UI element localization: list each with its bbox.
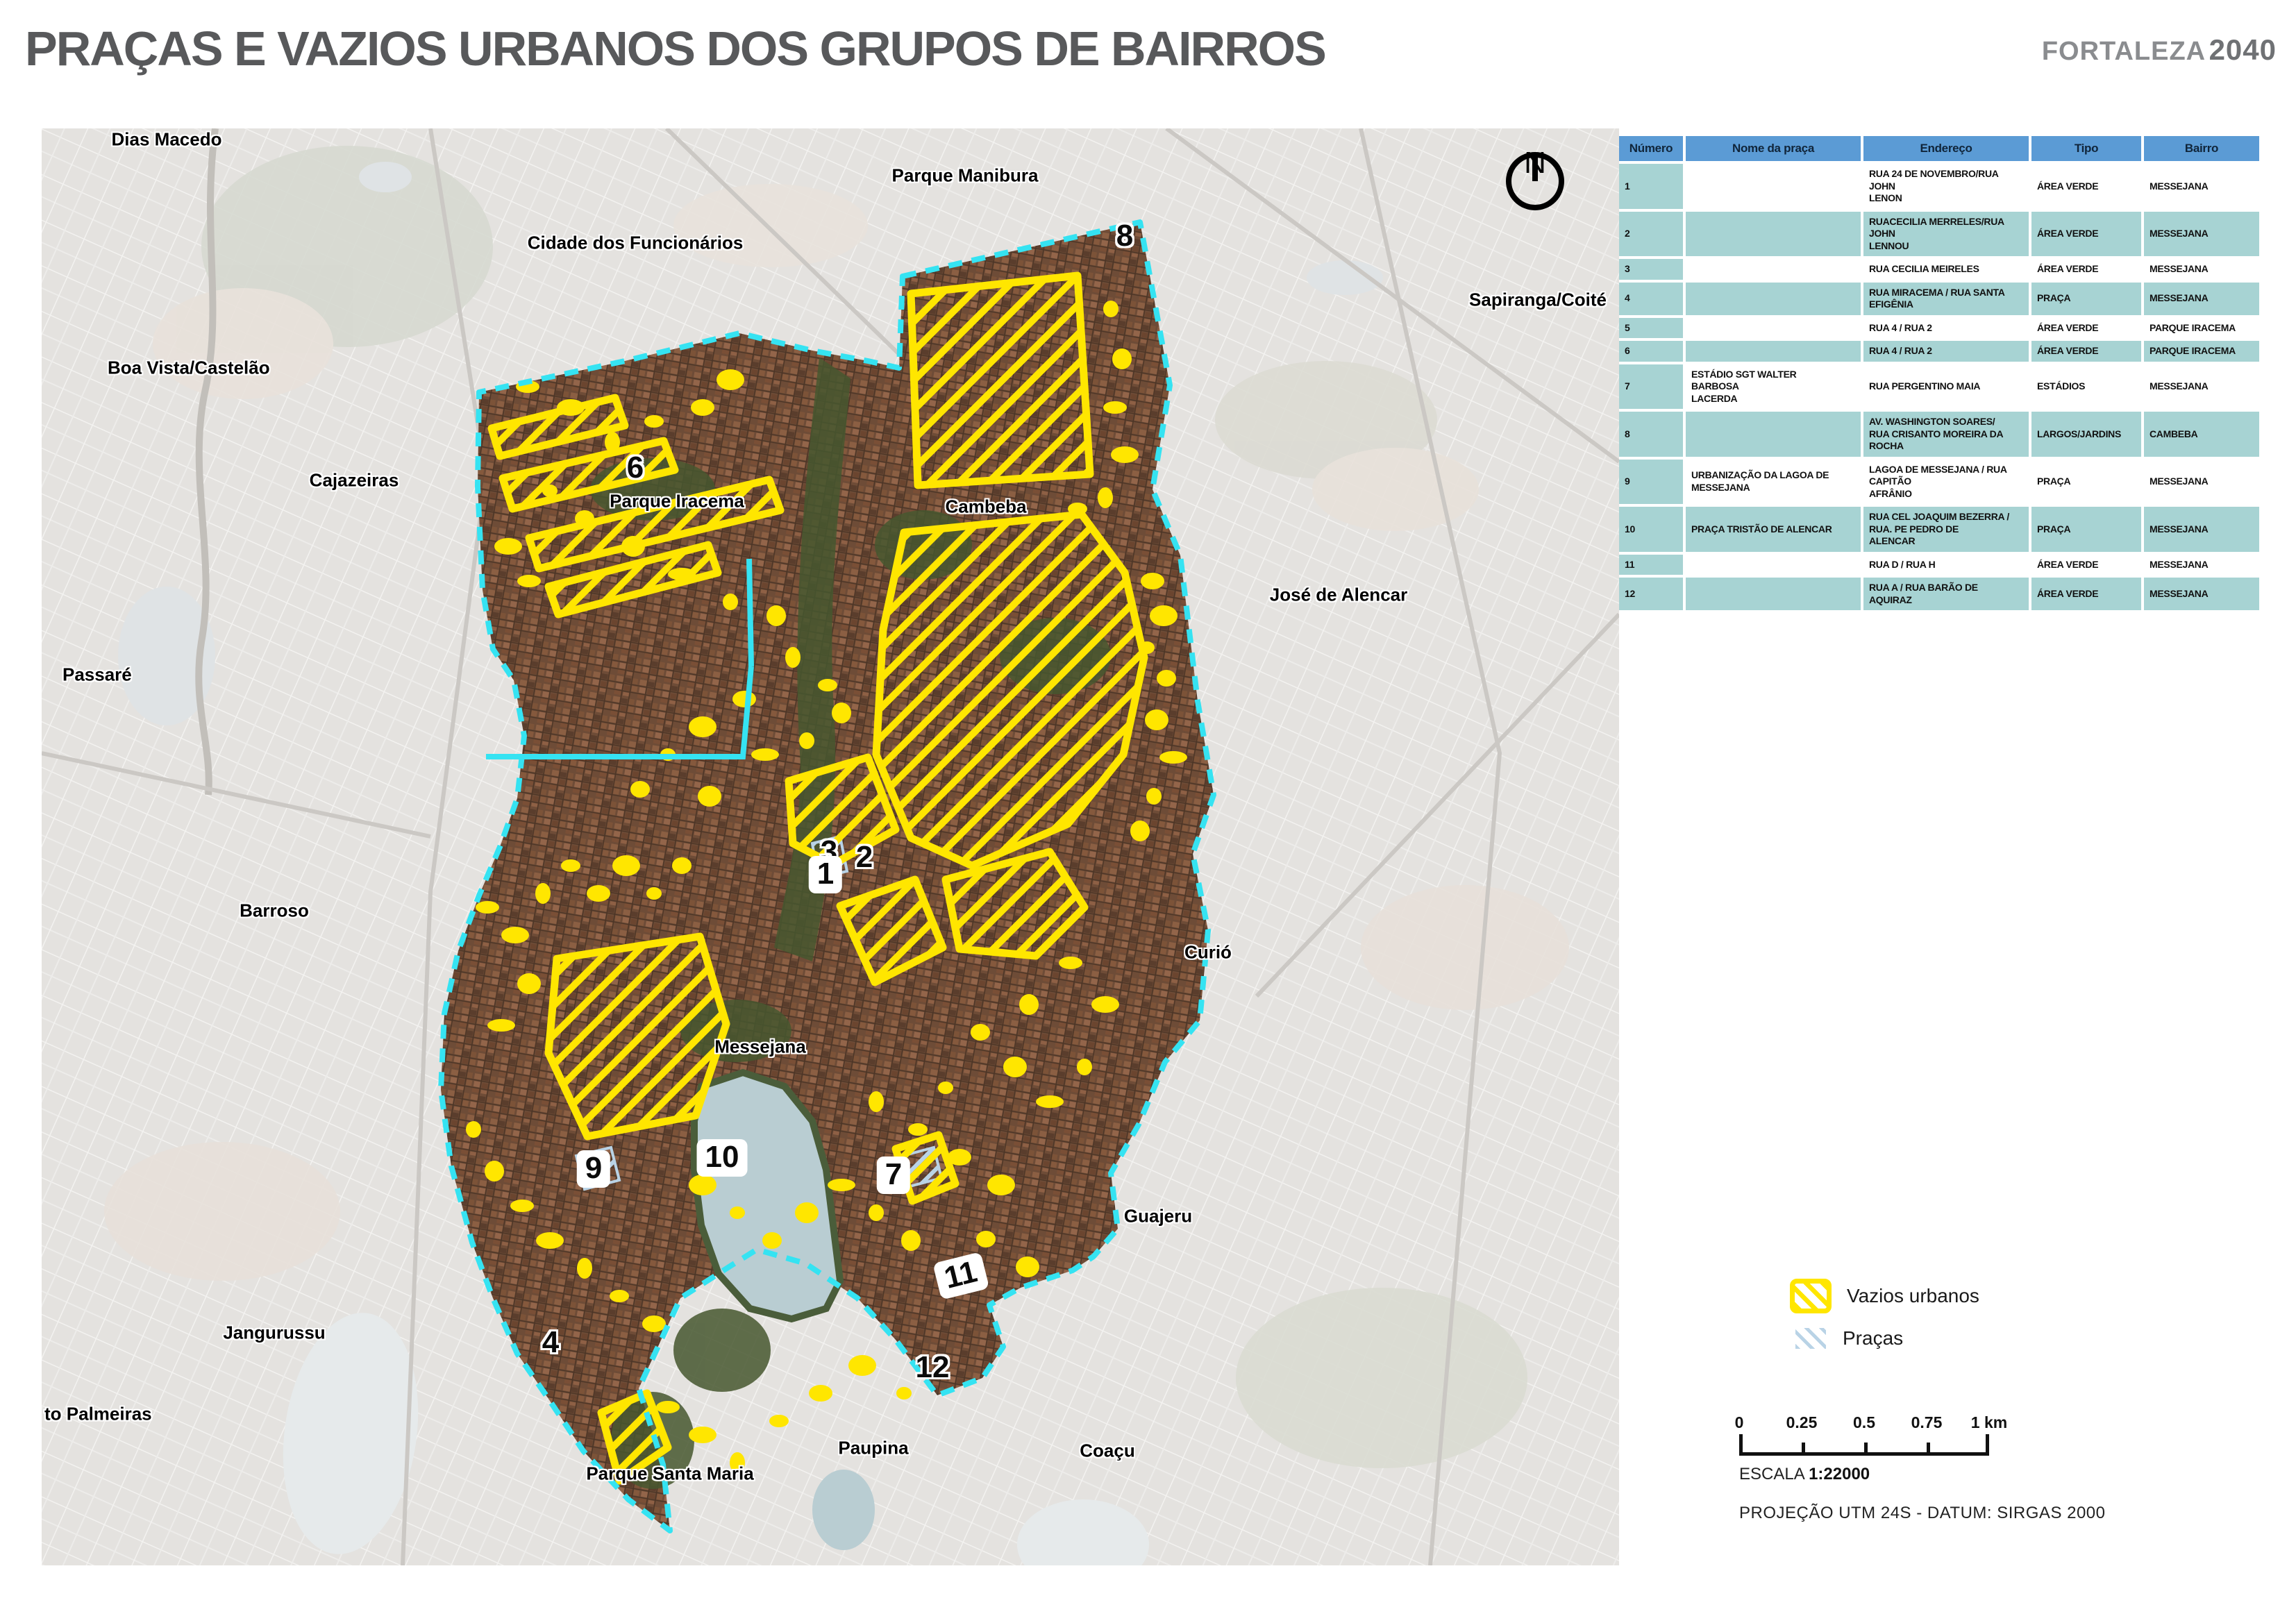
scale-tick [1739,1434,1743,1452]
cell-bairro: MESSEJANA [2144,283,2259,315]
map-region-label: José de Alencar [1270,585,1407,606]
cell-num: 4 [1619,283,1683,315]
cell-tipo: ESTÁDIOS [2031,364,2141,410]
cell-endereco: RUA 4 / RUA 2 [1863,341,2029,362]
cell-num: 6 [1619,341,1683,362]
scale-tick-label: 1 km [1971,1413,2007,1432]
cell-tipo: ÁREA VERDE [2031,164,2141,209]
cell-tipo: ÁREA VERDE [2031,318,2141,339]
scale-tick-label: 0 [1735,1413,1744,1432]
table-row: 1RUA 24 DE NOVEMBRO/RUA JOHN LENONÁREA V… [1619,164,2259,209]
map-marker-7: 7 [877,1157,910,1194]
scale-tick [1986,1434,1989,1452]
page: PRAÇAS E VAZIOS URBANOS DOS GRUPOS DE BA… [0,0,2296,1623]
map-marker-4: 4 [542,1327,559,1358]
map-marker-9: 9 [577,1150,610,1188]
cell-tipo: PRAÇA [2031,507,2141,552]
compass-icon [1503,148,1567,212]
escala-value: 1:22000 [1809,1465,1870,1483]
map-region-label: Paupina [838,1438,908,1459]
map-region-label: Boa Vista/Castelão [108,358,270,379]
cell-endereco: RUA MIRACEMA / RUA SANTA EFIGÊNIA [1863,283,2029,315]
projection-text: PROJEÇÃO UTM 24S - DATUM: SIRGAS 2000 [1739,1504,2106,1523]
cell-num: 12 [1619,578,1683,610]
cell-num: 9 [1619,460,1683,505]
cell-num: 10 [1619,507,1683,552]
map-marker-1: 1 [809,856,842,893]
cell-nome [1686,283,1861,315]
page-title: PRAÇAS E VAZIOS URBANOS DOS GRUPOS DE BA… [25,21,1325,76]
table-row: 8AV. WASHINGTON SOARES/ RUA CRISANTO MOR… [1619,412,2259,457]
cell-bairro: MESSEJANA [2144,212,2259,257]
cell-num: 5 [1619,318,1683,339]
scale-tick-label: 0.25 [1786,1413,1818,1432]
cell-nome: URBANIZAÇÃO DA LAGOA DE MESSEJANA [1686,460,1861,505]
north-arrow: N [1503,148,1567,181]
column-header: Tipo [2031,136,2141,161]
cell-bairro: PARQUE IRACEMA [2144,341,2259,362]
map-region-label: Cambeba [945,496,1026,518]
table-row: 9URBANIZAÇÃO DA LAGOA DE MESSEJANALAGOA … [1619,460,2259,505]
cell-tipo: PRAÇA [2031,283,2141,315]
cell-tipo: PRAÇA [2031,460,2141,505]
table-row: 2RUACECILIA MERRELES/RUA JOHN LENNOUÁREA… [1619,212,2259,257]
map-marker-10: 10 [697,1139,748,1177]
column-header: Bairro [2144,136,2259,161]
cell-nome [1686,412,1861,457]
logo-year: 2040 [2209,33,2277,66]
scale-tick-label: 0.75 [1911,1413,1943,1432]
legend-item-vazios: Vazios urbanos [1790,1279,1979,1313]
cell-nome: ESTÁDIO SGT WALTER BARBOSA LACERDA [1686,364,1861,410]
map-region-label: Dias Macedo [112,129,222,151]
map-region-label: Cidade dos Funcionários [528,233,744,254]
cell-endereco: RUA 24 DE NOVEMBRO/RUA JOHN LENON [1863,164,2029,209]
table-row: 5RUA 4 / RUA 2ÁREA VERDEPARQUE IRACEMA [1619,318,2259,339]
cell-bairro: MESSEJANA [2144,164,2259,209]
table-body: 1RUA 24 DE NOVEMBRO/RUA JOHN LENONÁREA V… [1619,164,2259,610]
cell-endereco: RUA A / RUA BARÃO DE AQUIRAZ [1863,578,2029,610]
map-region-label: Parque Manibura [892,165,1039,187]
cell-num: 11 [1619,555,1683,575]
map-region-label: Messejana [714,1036,806,1058]
map-region-label: Parque Santa Maria [586,1463,753,1485]
column-header: Nome da praça [1686,136,1861,161]
table-row: 6RUA 4 / RUA 2ÁREA VERDEPARQUE IRACEMA [1619,341,2259,362]
cell-endereco: LAGOA DE MESSEJANA / RUA CAPITÃO AFRÂNIO [1863,460,2029,505]
cell-tipo: ÁREA VERDE [2031,578,2141,610]
column-header: Endereço [1863,136,2029,161]
cell-bairro: MESSEJANA [2144,555,2259,575]
scale-text: ESCALA 1:22000 [1739,1465,1870,1484]
map-region-label: Barroso [240,900,309,922]
map-marker-8: 8 [1116,221,1133,251]
cell-endereco: RUA CECILIA MEIRELES [1863,259,2029,280]
cell-nome [1686,164,1861,209]
cell-tipo: LARGOS/JARDINS [2031,412,2141,457]
map-region-label: to Palmeiras [44,1404,152,1425]
cell-nome [1686,212,1861,257]
pracas-table: NúmeroNome da praçaEndereçoTipoBairro 1R… [1616,133,2262,613]
map-region-label: Passaré [62,664,132,686]
logo-name: FORTALEZA [2042,37,2206,66]
cell-endereco: RUA D / RUA H [1863,555,2029,575]
cell-bairro: CAMBEBA [2144,412,2259,457]
scalebar: 00.250.50.751 km [1739,1413,1989,1456]
cell-tipo: ÁREA VERDE [2031,259,2141,280]
cell-num: 1 [1619,164,1683,209]
map-marker-2: 2 [856,842,873,873]
scale-tick [1927,1443,1930,1452]
cell-num: 3 [1619,259,1683,280]
map-marker-11: 11 [932,1252,989,1300]
cell-endereco: RUA PERGENTINO MAIA [1863,364,2029,410]
cell-bairro: MESSEJANA [2144,507,2259,552]
cell-num: 8 [1619,412,1683,457]
cell-num: 2 [1619,212,1683,257]
column-header: Número [1619,136,1683,161]
cell-bairro: MESSEJANA [2144,578,2259,610]
cell-bairro: MESSEJANA [2144,364,2259,410]
cell-nome: PRAÇA TRISTÃO DE ALENCAR [1686,507,1861,552]
cell-bairro: MESSEJANA [2144,259,2259,280]
map-region-label: Sapiranga/Coité [1469,289,1607,311]
cell-nome [1686,555,1861,575]
legend-item-pracas: Praças [1790,1327,1979,1349]
map-region-label: Parque Iracema [610,491,744,512]
map-region-label: Curió [1184,942,1232,964]
cell-endereco: RUA 4 / RUA 2 [1863,318,2029,339]
cell-bairro: PARQUE IRACEMA [2144,318,2259,339]
table-row: 12RUA A / RUA BARÃO DE AQUIRAZÁREA VERDE… [1619,578,2259,610]
map-label-layer: Dias MacedoParque ManiburaCidade dos Fun… [42,128,1619,1565]
legend: Vazios urbanos Praças [1790,1279,1979,1363]
cell-num: 7 [1619,364,1683,410]
cell-endereco: RUA CEL JOAQUIM BEZERRA / RUA. PE PEDRO … [1863,507,2029,552]
scale-tick-label: 0.5 [1853,1413,1875,1432]
escala-label: ESCALA [1739,1465,1804,1483]
map-region-label: Coaçu [1080,1440,1134,1462]
cell-tipo: ÁREA VERDE [2031,555,2141,575]
map-marker-12: 12 [916,1352,950,1383]
map-region-label: Guajeru [1124,1206,1192,1227]
table-row: 10PRAÇA TRISTÃO DE ALENCARRUA CEL JOAQUI… [1619,507,2259,552]
map-region-label: Cajazeiras [310,470,399,491]
cell-endereco: RUACECILIA MERRELES/RUA JOHN LENNOU [1863,212,2029,257]
cell-nome [1686,259,1861,280]
cell-nome [1686,578,1861,610]
map-region-label: Jangurussu [223,1322,325,1344]
scale-tick [1864,1443,1868,1452]
table-row: 3RUA CECILIA MEIRELESÁREA VERDEMESSEJANA [1619,259,2259,280]
cell-tipo: ÁREA VERDE [2031,212,2141,257]
table-row: 4RUA MIRACEMA / RUA SANTA EFIGÊNIAPRAÇAM… [1619,283,2259,315]
fortaleza-2040-logo: FORTALEZA 2040 [2042,33,2277,67]
legend-label: Vazios urbanos [1847,1285,1979,1307]
scale-tick [1802,1443,1805,1452]
vazios-urbanos-icon [1790,1279,1832,1313]
cell-endereco: AV. WASHINGTON SOARES/ RUA CRISANTO MORE… [1863,412,2029,457]
cell-tipo: ÁREA VERDE [2031,341,2141,362]
scalebar-bar [1739,1433,1989,1456]
cell-nome [1686,318,1861,339]
table-header-row: NúmeroNome da praçaEndereçoTipoBairro [1619,136,2259,161]
map-canvas: Dias MacedoParque ManiburaCidade dos Fun… [42,128,1619,1565]
cell-bairro: MESSEJANA [2144,460,2259,505]
table-row: 7ESTÁDIO SGT WALTER BARBOSA LACERDARUA P… [1619,364,2259,410]
pracas-icon [1795,1328,1826,1349]
table-row: 11RUA D / RUA HÁREA VERDEMESSEJANA [1619,555,2259,575]
cell-nome [1686,341,1861,362]
legend-label: Praças [1843,1327,1903,1349]
scalebar-ticks: 00.250.50.751 km [1739,1413,1989,1433]
map-marker-6: 6 [627,453,644,483]
